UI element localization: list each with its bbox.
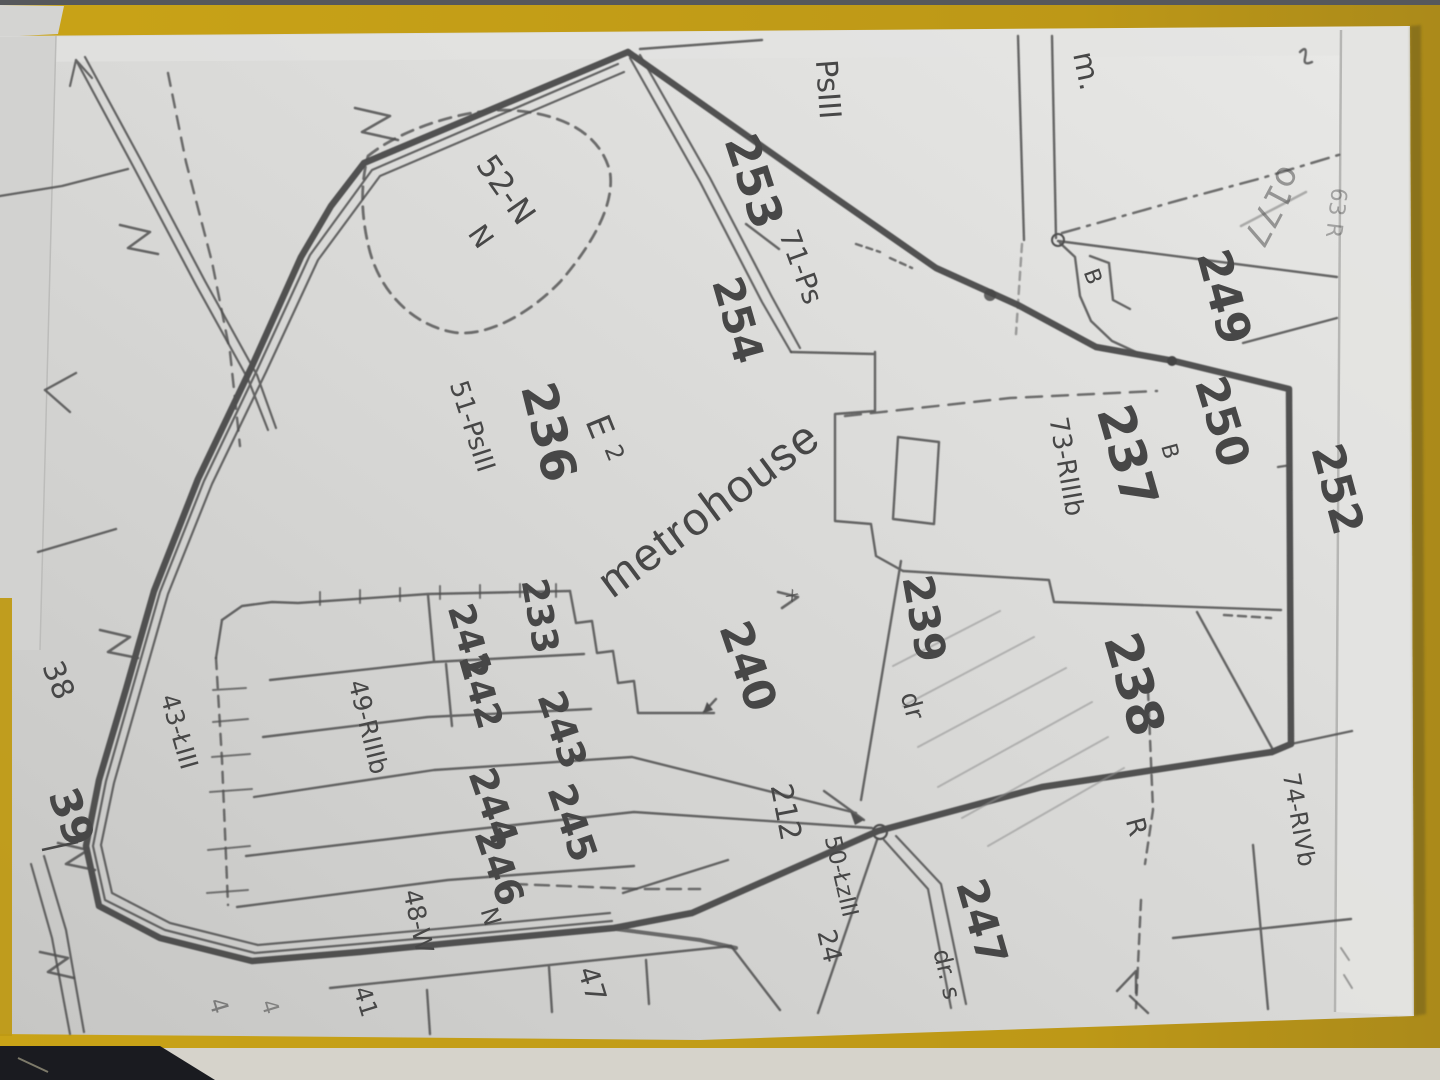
bottom-table-surface	[0, 1048, 1440, 1080]
photo-of-cadastral-map: PsIII 253 71-Ps 254 52-N N m. 249 o177 6…	[0, 0, 1440, 1080]
cadastral-map-image: PsIII 253 71-Ps 254 52-N N m. 249 o177 6…	[0, 0, 1440, 1080]
top-dark-edge	[0, 0, 1440, 5]
left-yellow-sliver	[0, 598, 12, 1036]
class-label-psIII: PsIII	[808, 58, 847, 120]
top-left-back-sheet	[0, 5, 64, 37]
